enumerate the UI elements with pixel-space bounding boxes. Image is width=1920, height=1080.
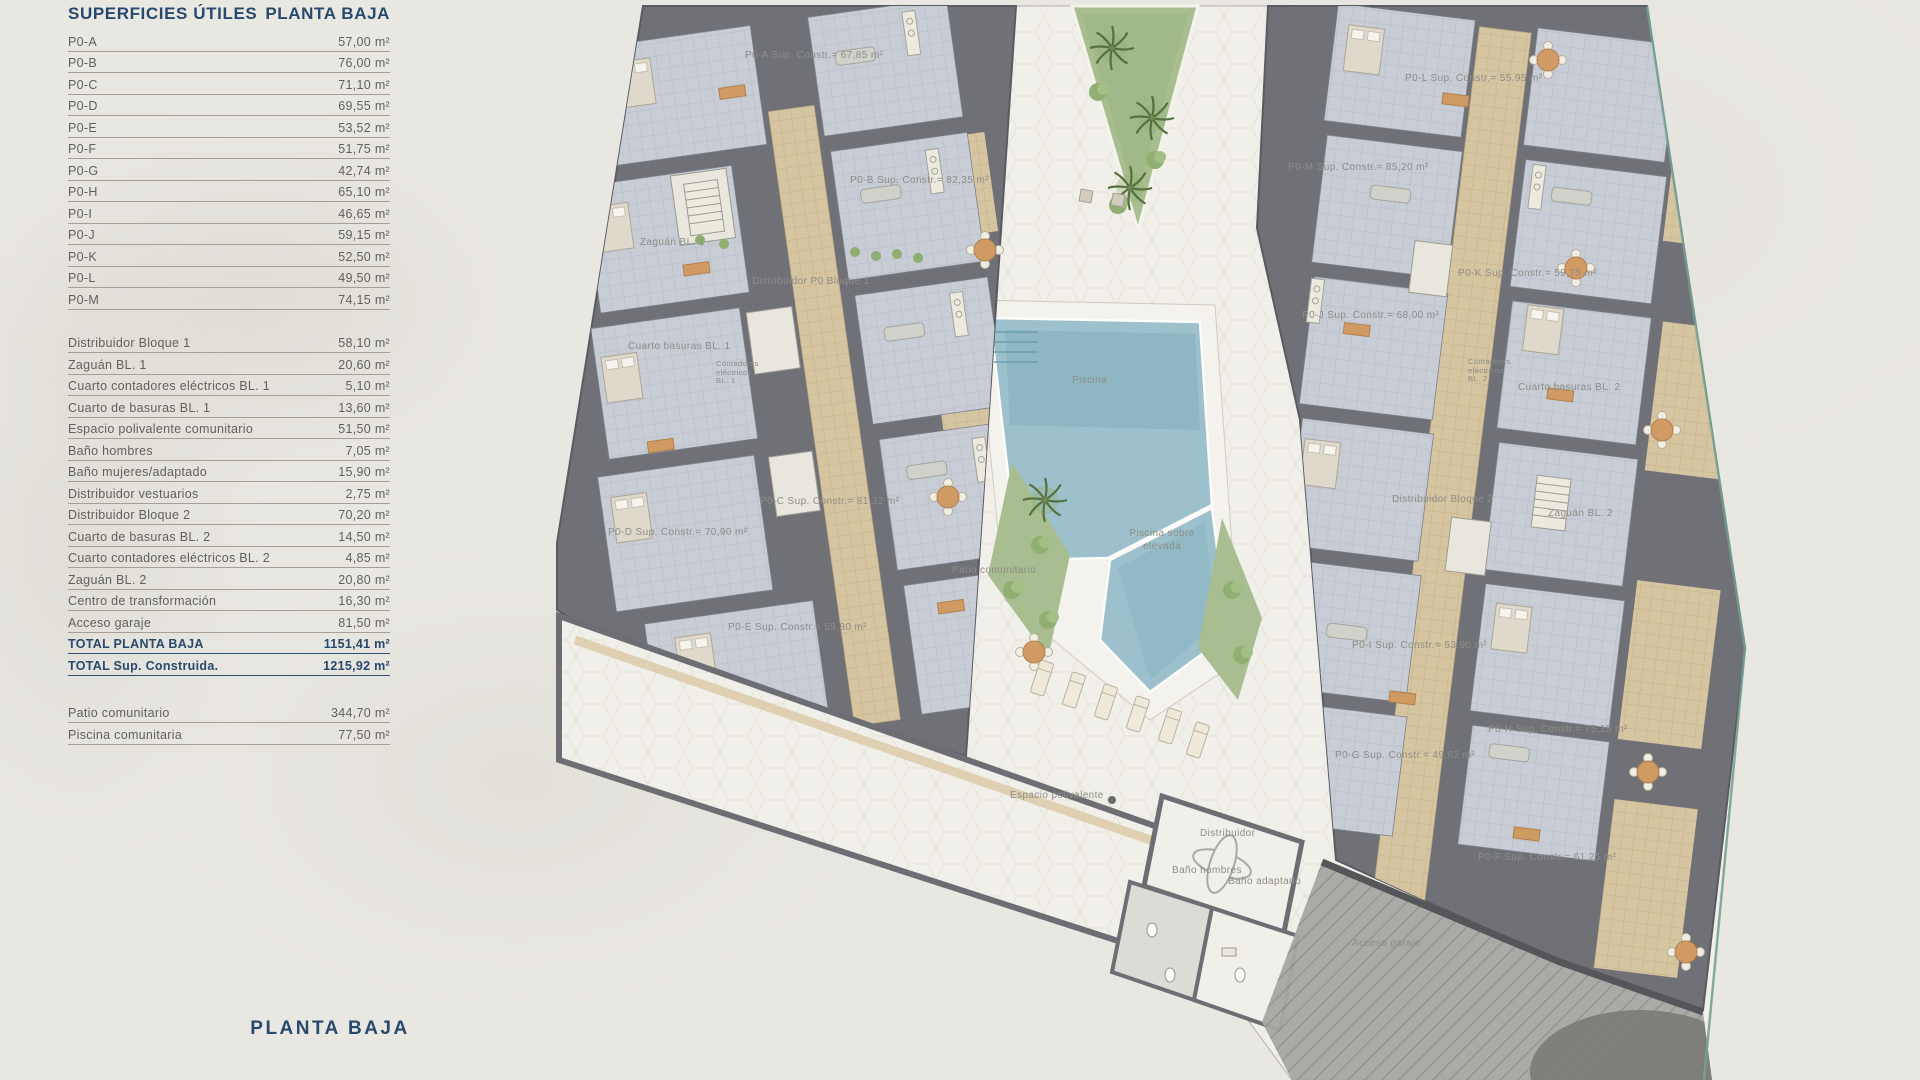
area-row: Distribuidor vestuarios2,75 m² (68, 482, 390, 504)
area-row: P0-B76,00 m² (68, 52, 390, 74)
area-row-value: 5,10 m² (346, 379, 390, 393)
area-row: Distribuidor Bloque 158,10 m² (68, 332, 390, 354)
common-area-rows: Distribuidor Bloque 158,10 m²Zaguán BL. … (68, 332, 390, 633)
area-row: P0-D69,55 m² (68, 95, 390, 117)
area-row-value: 74,15 m² (338, 293, 390, 307)
area-row-value: 53,52 m² (338, 121, 390, 135)
area-row-value: 16,30 m² (338, 594, 390, 608)
spacer (68, 676, 390, 702)
sheet-title: PLANTA BAJA (240, 1018, 420, 1040)
area-row-value: 7,05 m² (346, 444, 390, 458)
area-row: P0-C71,10 m² (68, 73, 390, 95)
area-row-label: P0-M (68, 293, 99, 307)
area-row-value: 1151,41 m² (324, 637, 390, 651)
area-row-value: 65,10 m² (338, 185, 390, 199)
area-row: Piscina comunitaria77,50 m² (68, 723, 390, 745)
area-row-label: P0-E (68, 121, 97, 135)
area-row-label: P0-J (68, 228, 95, 242)
area-row-value: 57,00 m² (338, 35, 390, 49)
area-row-value: 46,65 m² (338, 207, 390, 221)
area-row-label: Espacio polivalente comunitario (68, 422, 253, 436)
area-row: Distribuidor Bloque 270,20 m² (68, 504, 390, 526)
area-row: TOTAL PLANTA BAJA1151,41 m² (68, 633, 390, 655)
area-row: P0-I46,65 m² (68, 202, 390, 224)
area-row: Espacio polivalente comunitario51,50 m² (68, 418, 390, 440)
area-row-label: P0-C (68, 78, 98, 92)
area-row: P0-G42,74 m² (68, 159, 390, 181)
area-row-value: 42,74 m² (338, 164, 390, 178)
area-row-label: Baño hombres (68, 444, 153, 458)
panel-title-left: SUPERFICIES ÚTILES (68, 4, 257, 24)
area-row: P0-A57,00 m² (68, 30, 390, 52)
spacer (68, 310, 390, 332)
area-row-value: 20,80 m² (338, 573, 390, 587)
area-row-label: P0-I (68, 207, 92, 221)
area-row: P0-K52,50 m² (68, 245, 390, 267)
area-row-value: 20,60 m² (338, 358, 390, 372)
area-row-label: Baño mujeres/adaptado (68, 465, 207, 479)
area-row-value: 51,50 m² (338, 422, 390, 436)
area-row-label: TOTAL PLANTA BAJA (68, 637, 204, 651)
panel-title: SUPERFICIES ÚTILES PLANTA BAJA (68, 4, 390, 30)
area-row-label: Piscina comunitaria (68, 728, 182, 742)
area-row-label: Distribuidor Bloque 2 (68, 508, 190, 522)
area-row-value: 49,50 m² (338, 271, 390, 285)
area-row-value: 2,75 m² (346, 487, 390, 501)
area-row-label: TOTAL Sup. Construida. (68, 659, 218, 673)
area-row-value: 81,50 m² (338, 616, 390, 630)
area-row-label: Zaguán BL. 2 (68, 573, 147, 587)
area-row: Centro de transformación16,30 m² (68, 590, 390, 612)
area-row-label: Cuarto contadores eléctricos BL. 2 (68, 551, 270, 565)
area-row: Acceso garaje81,50 m² (68, 611, 390, 633)
area-row-label: P0-G (68, 164, 98, 178)
area-row-value: 71,10 m² (338, 78, 390, 92)
area-row: Cuarto contadores eléctricos BL. 24,85 m… (68, 547, 390, 569)
area-row-label: P0-B (68, 56, 97, 70)
area-row-label: Distribuidor Bloque 1 (68, 336, 190, 350)
panel-title-right: PLANTA BAJA (265, 4, 390, 24)
area-row-label: P0-D (68, 99, 98, 113)
area-row-label: Distribuidor vestuarios (68, 487, 199, 501)
area-row: Cuarto contadores eléctricos BL. 15,10 m… (68, 375, 390, 397)
area-row: P0-F51,75 m² (68, 138, 390, 160)
area-row-value: 70,20 m² (338, 508, 390, 522)
area-row-label: Centro de transformación (68, 594, 216, 608)
area-row: Baño hombres7,05 m² (68, 439, 390, 461)
total-rows: TOTAL PLANTA BAJA1151,41 m²TOTAL Sup. Co… (68, 633, 390, 676)
area-row-value: 69,55 m² (338, 99, 390, 113)
area-row-value: 13,60 m² (338, 401, 390, 415)
area-row: Cuarto de basuras BL. 214,50 m² (68, 525, 390, 547)
area-row: P0-J59,15 m² (68, 224, 390, 246)
area-row-value: 59,15 m² (338, 228, 390, 242)
area-row-value: 4,85 m² (346, 551, 390, 565)
area-row-label: Acceso garaje (68, 616, 151, 630)
area-row-label: Zaguán BL. 1 (68, 358, 147, 372)
area-row-value: 14,50 m² (338, 530, 390, 544)
area-row: P0-L49,50 m² (68, 267, 390, 289)
area-row-label: Cuarto de basuras BL. 2 (68, 530, 210, 544)
area-row-value: 58,10 m² (338, 336, 390, 350)
area-row: Zaguán BL. 120,60 m² (68, 353, 390, 375)
area-row-label: P0-H (68, 185, 98, 199)
area-row-label: P0-L (68, 271, 96, 285)
area-row: Baño mujeres/adaptado15,90 m² (68, 461, 390, 483)
area-row: P0-M74,15 m² (68, 288, 390, 310)
area-row-value: 52,50 m² (338, 250, 390, 264)
area-row-value: 1215,92 m² (323, 659, 390, 673)
area-row-label: Cuarto de basuras BL. 1 (68, 401, 210, 415)
areas-panel: SUPERFICIES ÚTILES PLANTA BAJA P0-A57,00… (68, 4, 390, 745)
area-row-value: 76,00 m² (338, 56, 390, 70)
area-row-value: 15,90 m² (338, 465, 390, 479)
outdoor-area-rows: Patio comunitario344,70 m²Piscina comuni… (68, 702, 390, 745)
area-row: Cuarto de basuras BL. 113,60 m² (68, 396, 390, 418)
area-row: Zaguán BL. 220,80 m² (68, 568, 390, 590)
unit-area-rows: P0-A57,00 m²P0-B76,00 m²P0-C71,10 m²P0-D… (68, 30, 390, 310)
area-row-label: P0-K (68, 250, 97, 264)
area-row-label: P0-F (68, 142, 96, 156)
area-row-value: 51,75 m² (338, 142, 390, 156)
area-row-label: Cuarto contadores eléctricos BL. 1 (68, 379, 270, 393)
area-row: Patio comunitario344,70 m² (68, 702, 390, 724)
area-row: TOTAL Sup. Construida.1215,92 m² (68, 654, 390, 676)
area-row-label: Patio comunitario (68, 706, 170, 720)
area-row: P0-E53,52 m² (68, 116, 390, 138)
area-row-value: 344,70 m² (331, 706, 390, 720)
area-row-value: 77,50 m² (338, 728, 390, 742)
area-row: P0-H65,10 m² (68, 181, 390, 203)
area-row-label: P0-A (68, 35, 97, 49)
